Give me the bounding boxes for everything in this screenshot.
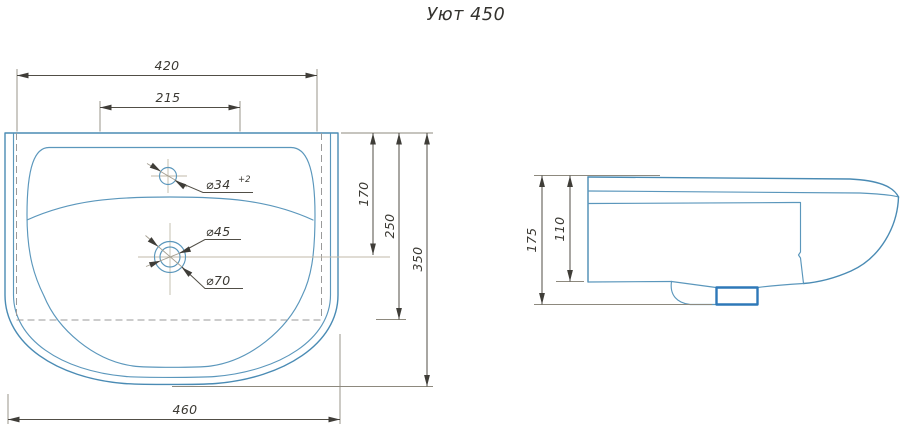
profile-rim-line xyxy=(588,191,899,197)
faucet-hole: ⌀34 +2 xyxy=(147,159,253,193)
profile-top-edge xyxy=(588,177,899,197)
technical-drawing-page: Уют 450 ⌀34 +2 xyxy=(0,0,900,429)
faucet-hole-tolerance-label: +2 xyxy=(238,175,251,185)
dim-110-label: 110 xyxy=(552,216,567,241)
drain-hole: ⌀45 ⌀70 xyxy=(138,223,390,295)
dim-420-label: 420 xyxy=(154,58,179,73)
profile-underside-left xyxy=(588,282,672,283)
side-view-drawing: 175 110 xyxy=(524,176,899,305)
dimension-460: 460 xyxy=(8,334,340,424)
drawing-canvas: Уют 450 ⌀34 +2 xyxy=(0,0,900,429)
dimension-stack-right: 170 250 350 xyxy=(172,133,433,387)
dim-350-label: 350 xyxy=(410,246,425,271)
mounting-dashed-outline xyxy=(17,133,322,320)
drain-inner-diameter-label: ⌀45 xyxy=(206,224,231,239)
dim-175-label: 175 xyxy=(524,227,539,252)
profile-front-curve xyxy=(804,197,899,284)
dim-170-label: 170 xyxy=(356,181,371,206)
faucet-hole-diameter-label: ⌀34 xyxy=(206,177,231,192)
drain-outer-diameter-label: ⌀70 xyxy=(206,273,231,288)
drawing-title: Уют 450 xyxy=(427,5,506,25)
dimension-215: 215 xyxy=(100,90,240,132)
profile-underside-right xyxy=(758,284,804,288)
dim-460-label: 460 xyxy=(172,402,197,417)
drain-trap xyxy=(671,282,757,305)
top-view-drawing: ⌀34 +2 ⌀45 ⌀70 xyxy=(5,58,433,424)
dimension-110: 110 xyxy=(552,176,584,282)
basin-outer-outline xyxy=(5,133,338,384)
bowl-back-edge-arc xyxy=(27,197,313,220)
profile-deck-and-bowl-back xyxy=(588,203,804,284)
dim-215-label: 215 xyxy=(155,90,180,105)
dim-250-label: 250 xyxy=(382,213,397,238)
